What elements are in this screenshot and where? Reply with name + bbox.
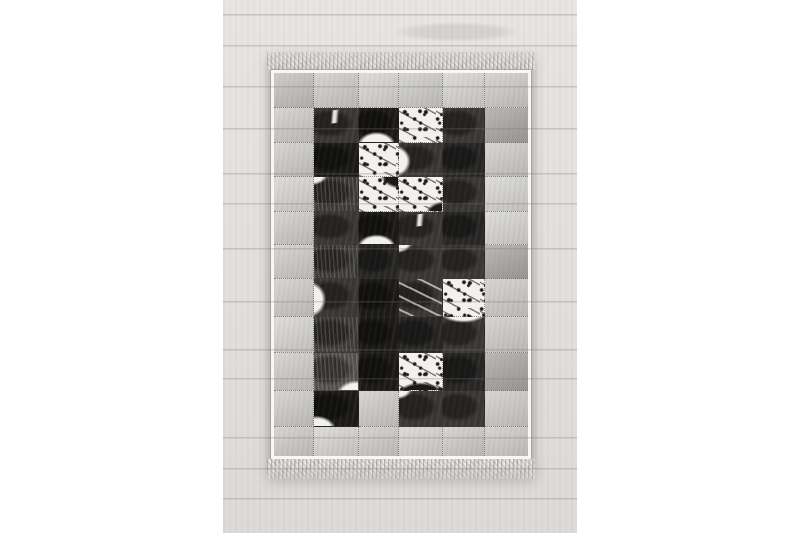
rug-row bbox=[274, 427, 528, 456]
rug-cell bbox=[274, 353, 314, 391]
rug-cell bbox=[274, 279, 314, 317]
rug-row bbox=[274, 391, 528, 427]
rug-cell bbox=[443, 73, 484, 108]
plank-seam bbox=[223, 14, 577, 16]
rug-cell bbox=[399, 143, 443, 177]
rug-cell bbox=[314, 177, 358, 212]
rug-cell bbox=[314, 279, 358, 317]
rug-row bbox=[274, 177, 528, 212]
rug-cell bbox=[485, 73, 528, 108]
rug-body bbox=[271, 70, 531, 459]
rug-grid bbox=[274, 73, 528, 456]
rug-cell bbox=[485, 353, 528, 391]
rug-cell bbox=[443, 212, 484, 245]
rug-cell bbox=[485, 108, 528, 143]
rug-cell bbox=[274, 427, 314, 456]
rug-cell bbox=[443, 353, 484, 391]
rug-row bbox=[274, 108, 528, 143]
rug-cell bbox=[399, 317, 443, 353]
rug-cell bbox=[274, 108, 314, 143]
rug-cell bbox=[314, 245, 358, 279]
rug-row bbox=[274, 73, 528, 108]
rug-cell bbox=[399, 212, 443, 245]
rug-cell bbox=[399, 391, 443, 427]
rug-cell bbox=[485, 177, 528, 212]
rug-cell bbox=[314, 353, 358, 391]
rug-cell bbox=[359, 108, 399, 143]
rug-cell bbox=[359, 143, 399, 177]
rug-cell bbox=[314, 391, 358, 427]
rug-cell bbox=[359, 177, 399, 212]
rug-cell bbox=[314, 317, 358, 353]
rug-cell bbox=[399, 353, 443, 391]
rug-cell bbox=[485, 143, 528, 177]
rug-cell bbox=[443, 143, 484, 177]
rug-cell bbox=[443, 108, 484, 143]
rug-cell bbox=[485, 427, 528, 456]
rug-cell bbox=[399, 245, 443, 279]
rug-row bbox=[274, 143, 528, 177]
rug-fringe-bottom bbox=[267, 459, 535, 479]
rug-cell bbox=[359, 353, 399, 391]
rug-fringe-top bbox=[267, 52, 535, 70]
rug-cell bbox=[443, 427, 484, 456]
rug-cell bbox=[314, 73, 358, 108]
rug-row bbox=[274, 245, 528, 279]
rug-cell bbox=[443, 177, 484, 212]
rug-row bbox=[274, 317, 528, 353]
rug-cell bbox=[359, 245, 399, 279]
rug-cell bbox=[359, 212, 399, 245]
rug-cell bbox=[443, 391, 484, 427]
rug-row bbox=[274, 353, 528, 391]
wood-floor-background bbox=[223, 0, 577, 533]
rug-cell bbox=[314, 108, 358, 143]
rug-cell bbox=[274, 177, 314, 212]
rug-cell bbox=[399, 108, 443, 143]
rug-cell bbox=[359, 391, 399, 427]
rug-cell bbox=[314, 427, 358, 456]
rug-cell bbox=[274, 391, 314, 427]
rug-cell bbox=[485, 279, 528, 317]
rug-cell bbox=[274, 317, 314, 353]
rug-cell bbox=[485, 317, 528, 353]
rug-cell bbox=[485, 212, 528, 245]
rug-cell bbox=[399, 73, 443, 108]
rug-cell bbox=[274, 73, 314, 108]
plank-seam bbox=[223, 498, 577, 500]
rug-cell bbox=[399, 177, 443, 212]
rug-cell bbox=[399, 279, 443, 317]
rug-cell bbox=[443, 245, 484, 279]
rug-cell bbox=[359, 317, 399, 353]
rug-cell bbox=[359, 427, 399, 456]
rug-row bbox=[274, 279, 528, 317]
rug-cell bbox=[274, 245, 314, 279]
rug-cell bbox=[359, 73, 399, 108]
rug-cell bbox=[314, 212, 358, 245]
rug-cell bbox=[485, 391, 528, 427]
rug-cell bbox=[314, 143, 358, 177]
patchwork-rug bbox=[267, 52, 535, 479]
rug-cell bbox=[274, 143, 314, 177]
rug-cell bbox=[485, 245, 528, 279]
rug-cell bbox=[359, 279, 399, 317]
rug-cell bbox=[443, 317, 484, 353]
rug-row bbox=[274, 212, 528, 245]
rug-cell bbox=[274, 212, 314, 245]
rug-cell bbox=[443, 279, 484, 317]
plank-seam bbox=[223, 45, 577, 47]
rug-cell bbox=[399, 427, 443, 456]
